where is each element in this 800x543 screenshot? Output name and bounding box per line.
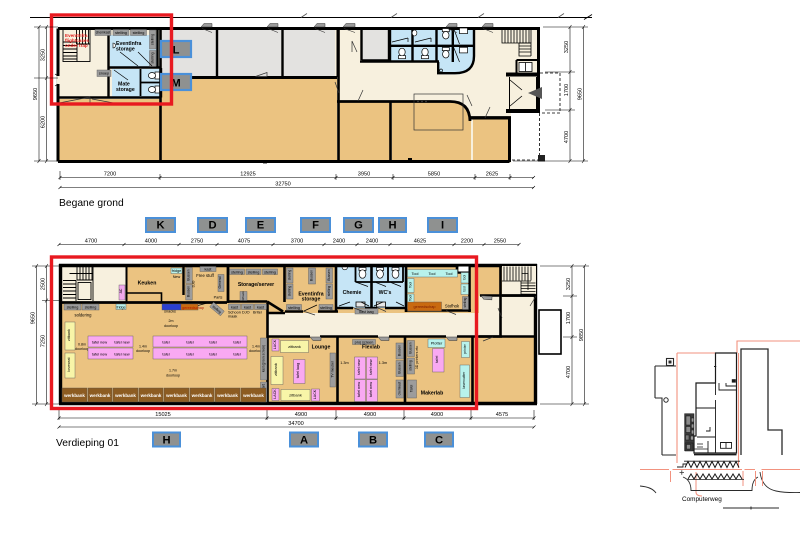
svg-text:15025: 15025 bbox=[155, 412, 171, 418]
svg-text:loveseat: loveseat bbox=[67, 356, 71, 371]
svg-text:4900: 4900 bbox=[431, 412, 443, 418]
svg-text:storage: storage bbox=[116, 47, 135, 53]
svg-text:tafel: tafel bbox=[233, 353, 240, 357]
svg-text:chemkast: chemkast bbox=[96, 31, 111, 35]
svg-text:soldering: soldering bbox=[75, 313, 93, 318]
svg-text:2625: 2625 bbox=[486, 172, 498, 178]
svg-text:1.3m: 1.3m bbox=[379, 361, 387, 365]
svg-text:tafel new: tafel new bbox=[357, 382, 361, 397]
svg-text:tafel: tafel bbox=[162, 341, 169, 345]
svg-text:0.8m: 0.8m bbox=[78, 343, 86, 347]
svg-text:9850: 9850 bbox=[579, 329, 585, 341]
svg-text:2400: 2400 bbox=[333, 239, 345, 245]
svg-text:tafel: tafel bbox=[209, 341, 216, 345]
svg-text:2750: 2750 bbox=[191, 239, 203, 245]
svg-text:4000: 4000 bbox=[145, 239, 157, 245]
svg-text:tafel new: tafel new bbox=[92, 341, 107, 345]
svg-text:B: B bbox=[369, 434, 377, 446]
svg-text:Bussen: Bussen bbox=[398, 345, 402, 356]
svg-text:Keuken: Keuken bbox=[138, 281, 157, 287]
svg-text:tafel new: tafel new bbox=[369, 359, 373, 374]
svg-text:storage: storage bbox=[116, 87, 135, 93]
svg-text:stelling: stelling bbox=[151, 34, 155, 45]
svg-text:doorloop: doorloop bbox=[166, 374, 180, 378]
svg-text:stelling: stelling bbox=[115, 31, 127, 35]
svg-text:zitbank: zitbank bbox=[273, 363, 278, 376]
svg-text:werkbank: werkbank bbox=[140, 393, 162, 398]
svg-text:Makerlab: Makerlab bbox=[421, 391, 444, 397]
svg-text:kast: kast bbox=[205, 268, 213, 272]
svg-text:werkbank: werkbank bbox=[114, 393, 136, 398]
svg-text:2200: 2200 bbox=[461, 239, 473, 245]
svg-text:A: A bbox=[300, 434, 308, 446]
svg-text:E: E bbox=[257, 220, 265, 232]
svg-text:tafel new: tafel new bbox=[114, 353, 129, 357]
svg-text:stelling: stelling bbox=[288, 270, 292, 281]
svg-text:tafel: tafel bbox=[435, 355, 439, 362]
svg-text:LACK: LACK bbox=[273, 339, 277, 349]
svg-text:1.7m: 1.7m bbox=[169, 369, 177, 373]
svg-text:Tafel: Tafel bbox=[410, 385, 414, 393]
svg-text:stelling: stelling bbox=[320, 306, 332, 310]
svg-text:K: K bbox=[156, 220, 164, 232]
svg-text:I: I bbox=[441, 220, 444, 232]
svg-text:Bussen: Bussen bbox=[398, 362, 402, 373]
svg-text:chemkast: chemkast bbox=[398, 382, 402, 396]
svg-text:Bussen: Bussen bbox=[187, 269, 191, 280]
svg-text:9650: 9650 bbox=[31, 312, 37, 324]
svg-text:5850: 5850 bbox=[428, 172, 440, 178]
svg-text:gereedschap: gereedschap bbox=[182, 306, 204, 310]
svg-text:1.3m: 1.3m bbox=[340, 361, 348, 365]
svg-text:werkbank: werkbank bbox=[242, 393, 264, 398]
svg-text:stelling: stelling bbox=[231, 270, 243, 274]
svg-text:zitbank: zitbank bbox=[67, 329, 71, 341]
svg-text:2500: 2500 bbox=[41, 278, 47, 290]
svg-text:stelling: stelling bbox=[463, 297, 467, 307]
svg-text:3250: 3250 bbox=[566, 278, 572, 290]
svg-text:werkbank: werkbank bbox=[191, 393, 213, 398]
svg-text:7200: 7200 bbox=[104, 172, 116, 178]
svg-text:Plotter: Plotter bbox=[431, 341, 443, 346]
svg-text:12925: 12925 bbox=[240, 172, 256, 178]
svg-text:Bussen: Bussen bbox=[187, 286, 191, 297]
svg-text:fridge: fridge bbox=[117, 305, 126, 309]
svg-text:9650: 9650 bbox=[33, 88, 39, 100]
svg-text:2m: 2m bbox=[169, 319, 174, 323]
svg-text:2550: 2550 bbox=[494, 239, 506, 245]
svg-text:storage: storage bbox=[302, 297, 321, 303]
svg-text:4900: 4900 bbox=[364, 412, 376, 418]
svg-text:Tool: Tool bbox=[429, 272, 436, 276]
svg-text:tafel laag: tafel laag bbox=[296, 363, 300, 378]
svg-text:H: H bbox=[162, 434, 170, 446]
svg-text:4700: 4700 bbox=[564, 131, 570, 143]
svg-text:tafel new: tafel new bbox=[92, 353, 107, 357]
svg-text:34700: 34700 bbox=[288, 421, 304, 427]
svg-text:Tool: Tool bbox=[409, 295, 413, 301]
svg-text:kast laag: kast laag bbox=[359, 310, 373, 314]
svg-text:19'rack: 19'rack bbox=[241, 291, 245, 301]
svg-text:snacks: snacks bbox=[164, 310, 176, 314]
svg-text:Flexlab: Flexlab bbox=[362, 345, 380, 351]
svg-text:1.4m: 1.4m bbox=[139, 345, 147, 349]
svg-text:stelling: stelling bbox=[409, 360, 413, 371]
svg-text:doorloop: doorloop bbox=[75, 347, 89, 351]
svg-text:maak: maak bbox=[228, 315, 237, 319]
svg-text:kast (green screen): kast (green screen) bbox=[262, 345, 266, 372]
svg-text:DJO: DJO bbox=[192, 280, 196, 287]
svg-text:Tool: Tool bbox=[446, 272, 453, 276]
svg-text:Begane grond: Begane grond bbox=[59, 198, 124, 209]
svg-text:zitbank: zitbank bbox=[289, 393, 302, 398]
svg-text:TV meubel: TV meubel bbox=[330, 361, 334, 378]
svg-text:werkbank: werkbank bbox=[165, 393, 187, 398]
svg-text:Bussen: Bussen bbox=[409, 342, 413, 353]
svg-text:tafel new: tafel new bbox=[357, 359, 361, 374]
svg-text:stelling: stelling bbox=[67, 306, 79, 310]
svg-text:Verdieping 01: Verdieping 01 bbox=[56, 438, 119, 449]
svg-text:Bussen: Bussen bbox=[327, 269, 331, 280]
svg-text:3250: 3250 bbox=[564, 41, 570, 53]
svg-text:DJO: DJO bbox=[242, 311, 250, 315]
svg-text:General: General bbox=[218, 276, 222, 288]
svg-text:Lounge: Lounge bbox=[312, 345, 331, 351]
svg-text:Free stuff: Free stuff bbox=[196, 273, 214, 278]
svg-text:stelling: stelling bbox=[288, 306, 300, 310]
svg-text:printer: printer bbox=[463, 343, 467, 353]
svg-text:tool: tool bbox=[463, 275, 467, 280]
svg-text:3250: 3250 bbox=[41, 49, 47, 61]
svg-text:werkbank: werkbank bbox=[89, 393, 111, 398]
svg-text:4625: 4625 bbox=[414, 239, 426, 245]
svg-text:7250: 7250 bbox=[41, 335, 47, 347]
svg-text:tafel: tafel bbox=[162, 353, 169, 357]
svg-text:tafel new: tafel new bbox=[114, 341, 129, 345]
svg-text:H: H bbox=[388, 220, 396, 232]
svg-text:D: D bbox=[208, 220, 216, 232]
svg-text:AC: AC bbox=[119, 288, 123, 293]
svg-text:9650: 9650 bbox=[578, 88, 584, 100]
svg-text:onder trap: onder trap bbox=[65, 43, 88, 48]
svg-text:Tool: Tool bbox=[409, 282, 413, 288]
svg-text:3D printers etc: 3D printers etc bbox=[415, 346, 419, 370]
svg-text:4575: 4575 bbox=[496, 412, 508, 418]
svg-text:Bussen: Bussen bbox=[310, 270, 314, 281]
svg-text:stelling: stelling bbox=[133, 31, 145, 35]
svg-text:doorloop: doorloop bbox=[164, 324, 178, 328]
svg-text:Stofhok: Stofhok bbox=[445, 304, 460, 309]
svg-text:Briter: Briter bbox=[253, 311, 263, 315]
svg-text:doorloop: doorloop bbox=[136, 349, 150, 353]
svg-text:Storage/server: Storage/server bbox=[238, 282, 274, 288]
svg-text:4700: 4700 bbox=[566, 366, 572, 378]
svg-text:tafel: tafel bbox=[209, 353, 216, 357]
svg-text:tool: tool bbox=[463, 286, 467, 291]
svg-text:Chemie: Chemie bbox=[343, 290, 362, 296]
svg-text:fridge: fridge bbox=[172, 269, 182, 273]
svg-text:6200: 6200 bbox=[41, 116, 47, 128]
svg-text:tafel new: tafel new bbox=[369, 382, 373, 397]
svg-text:kast: kast bbox=[257, 305, 265, 309]
svg-text:werkbank: werkbank bbox=[63, 393, 85, 398]
svg-text:LACK: LACK bbox=[313, 389, 317, 399]
svg-text:32750: 32750 bbox=[275, 182, 291, 188]
svg-text:stelling: stelling bbox=[248, 270, 260, 274]
svg-text:tafel: tafel bbox=[186, 341, 193, 345]
svg-text:lasercutter: lasercutter bbox=[462, 371, 466, 389]
svg-text:snoep: snoep bbox=[99, 72, 109, 76]
svg-text:tafel: tafel bbox=[233, 341, 240, 345]
svg-text:zitbank: zitbank bbox=[288, 344, 301, 349]
svg-text:kast: kast bbox=[231, 305, 239, 309]
svg-text:gereedschap: gereedschap bbox=[414, 305, 436, 309]
svg-text:New: New bbox=[173, 275, 181, 279]
svg-text:C: C bbox=[435, 434, 443, 446]
svg-text:L: L bbox=[173, 45, 180, 57]
svg-text:4900: 4900 bbox=[295, 412, 307, 418]
svg-text:stelling: stelling bbox=[264, 270, 276, 274]
svg-text:tafel: tafel bbox=[186, 353, 193, 357]
svg-text:1700: 1700 bbox=[566, 312, 572, 324]
svg-text:stelling: stelling bbox=[151, 52, 155, 63]
svg-text:Tool: Tool bbox=[412, 272, 419, 276]
svg-text:4700: 4700 bbox=[85, 239, 97, 245]
svg-text:3700: 3700 bbox=[291, 239, 303, 245]
svg-text:WC's: WC's bbox=[379, 290, 392, 296]
svg-text:stelling: stelling bbox=[85, 306, 97, 310]
svg-text:F: F bbox=[312, 220, 319, 232]
svg-text:2400: 2400 bbox=[366, 239, 378, 245]
svg-text:Computerweg: Computerweg bbox=[682, 496, 722, 503]
svg-text:werkbank: werkbank bbox=[216, 393, 238, 398]
svg-text:3950: 3950 bbox=[358, 172, 370, 178]
svg-text:kast: kast bbox=[244, 305, 252, 309]
svg-text:1700: 1700 bbox=[564, 84, 570, 96]
svg-text:1.4m: 1.4m bbox=[252, 345, 260, 349]
svg-text:G: G bbox=[354, 220, 363, 232]
svg-text:stelling: stelling bbox=[288, 286, 292, 297]
svg-text:4075: 4075 bbox=[238, 239, 250, 245]
svg-text:Parts: Parts bbox=[214, 296, 223, 300]
svg-text:stelling: stelling bbox=[327, 286, 331, 297]
svg-text:LACK: LACK bbox=[273, 389, 277, 399]
